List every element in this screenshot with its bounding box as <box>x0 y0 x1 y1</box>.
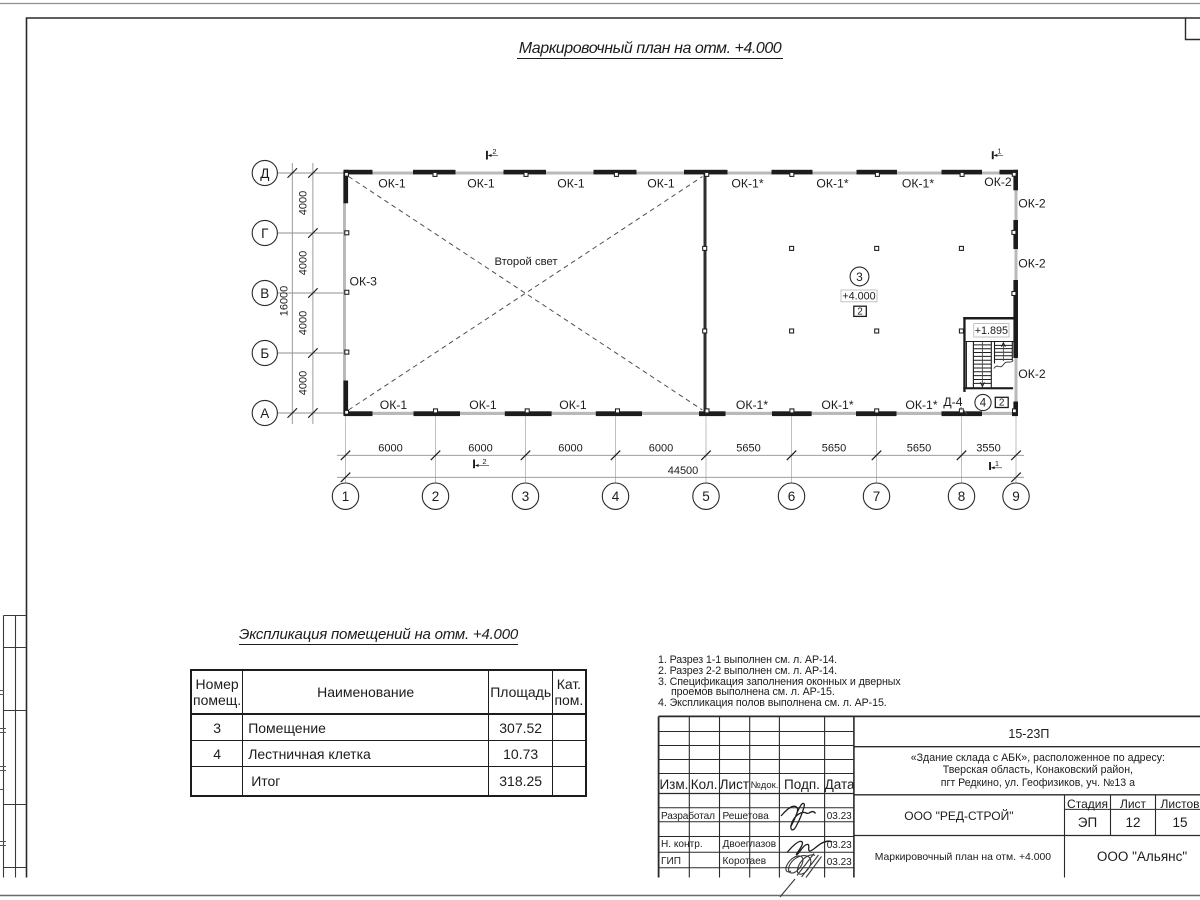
svg-text:Второй свет: Второй свет <box>494 256 557 268</box>
svg-text:ОК-1: ОК-1 <box>469 398 497 412</box>
svg-text:+4.000: +4.000 <box>842 291 875 303</box>
svg-text:3: 3 <box>522 489 530 504</box>
svg-text:1: 1 <box>997 147 1001 156</box>
svg-text:4: 4 <box>980 398 987 410</box>
svg-text:2: 2 <box>492 147 496 156</box>
svg-text:2: 2 <box>999 398 1005 409</box>
svg-text:5650: 5650 <box>822 443 846 455</box>
svg-text:44500: 44500 <box>668 465 699 477</box>
svg-text:6000: 6000 <box>558 443 582 455</box>
svg-text:ОК-1: ОК-1 <box>557 177 585 191</box>
svg-text:ОК-1*: ОК-1* <box>816 177 848 191</box>
svg-text:ОК-1: ОК-1 <box>380 398 408 412</box>
svg-text:7: 7 <box>873 489 881 504</box>
svg-text:4000: 4000 <box>298 251 310 275</box>
svg-text:ОК-1: ОК-1 <box>559 398 587 412</box>
svg-text:6: 6 <box>788 489 796 504</box>
svg-text:6000: 6000 <box>649 443 673 455</box>
svg-text:ОК-3: ОК-3 <box>350 275 378 289</box>
svg-text:ОК-2: ОК-2 <box>1018 367 1046 381</box>
svg-text:5: 5 <box>702 489 710 504</box>
svg-text:ОК-1: ОК-1 <box>467 177 495 191</box>
svg-text:Б: Б <box>260 346 269 361</box>
svg-text:4000: 4000 <box>298 191 310 215</box>
svg-text:3550: 3550 <box>976 443 1000 455</box>
svg-text:ОК-1*: ОК-1* <box>902 177 934 191</box>
svg-text:Г: Г <box>261 226 269 241</box>
svg-text:ОК-1*: ОК-1* <box>731 177 763 191</box>
svg-text:6000: 6000 <box>378 443 402 455</box>
svg-text:4: 4 <box>612 489 620 504</box>
svg-text:ОК-1: ОК-1 <box>378 177 406 191</box>
svg-text:1: 1 <box>995 459 999 468</box>
svg-text:2: 2 <box>857 307 863 318</box>
svg-text:1: 1 <box>342 489 350 504</box>
svg-text:8: 8 <box>958 489 966 504</box>
svg-text:Д-4: Д-4 <box>943 395 962 409</box>
svg-text:16000: 16000 <box>279 286 291 317</box>
svg-text:В: В <box>260 286 269 301</box>
svg-text:2: 2 <box>482 457 486 466</box>
svg-text:4000: 4000 <box>298 371 310 395</box>
svg-text:ОК-2: ОК-2 <box>984 175 1012 189</box>
svg-text:ОК-1*: ОК-1* <box>821 398 853 412</box>
svg-text:ОК-1: ОК-1 <box>647 177 675 191</box>
svg-text:ОК-2: ОК-2 <box>1018 197 1046 211</box>
svg-text:ОК-1*: ОК-1* <box>905 398 937 412</box>
svg-text:ОК-2: ОК-2 <box>1018 257 1046 271</box>
svg-text:3: 3 <box>856 270 863 284</box>
svg-text:+1.895: +1.895 <box>975 325 1008 337</box>
svg-text:ОК-1*: ОК-1* <box>736 398 768 412</box>
svg-text:А: А <box>260 406 269 421</box>
svg-text:5650: 5650 <box>736 443 760 455</box>
svg-text:9: 9 <box>1012 489 1020 504</box>
svg-text:6000: 6000 <box>468 443 492 455</box>
svg-text:4000: 4000 <box>298 311 310 335</box>
svg-text:2: 2 <box>432 489 440 504</box>
svg-text:Д: Д <box>260 166 269 181</box>
svg-text:5650: 5650 <box>907 443 931 455</box>
